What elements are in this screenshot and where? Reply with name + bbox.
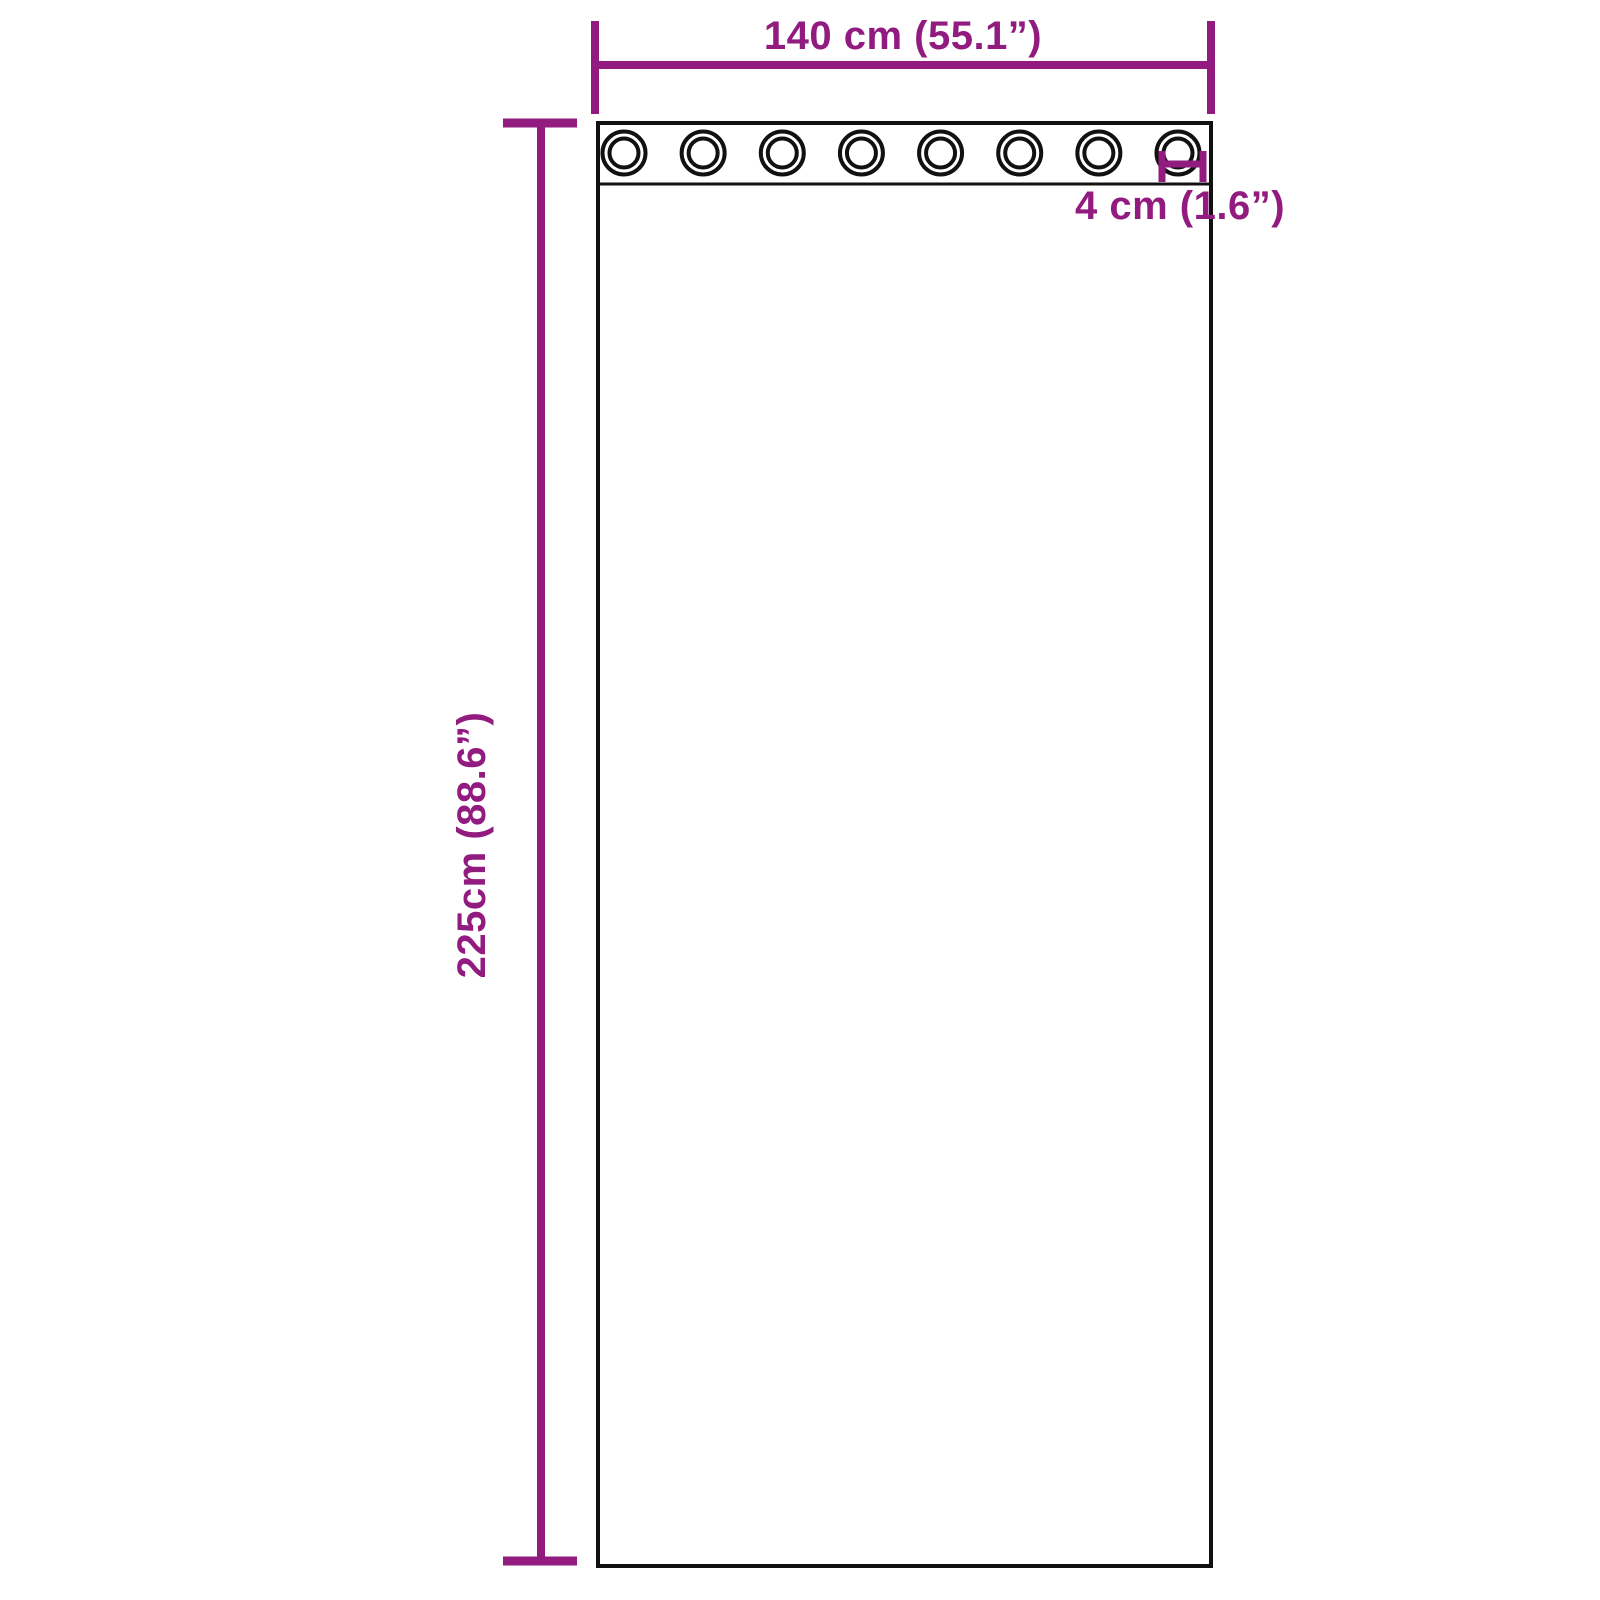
grommet-size-label: 4 cm (1.6”)	[980, 182, 1380, 230]
curtain-diagram	[0, 0, 1600, 1600]
width-dimension-label: 140 cm (55.1”)	[595, 12, 1211, 60]
height-dimension-line	[503, 123, 577, 1561]
height-dimension-label: 225cm (88.6”)	[448, 545, 496, 1145]
curtain-outline	[598, 123, 1211, 1566]
diagram-canvas: 140 cm (55.1”) 225cm (88.6”) 4 cm (1.6”)	[0, 0, 1600, 1600]
